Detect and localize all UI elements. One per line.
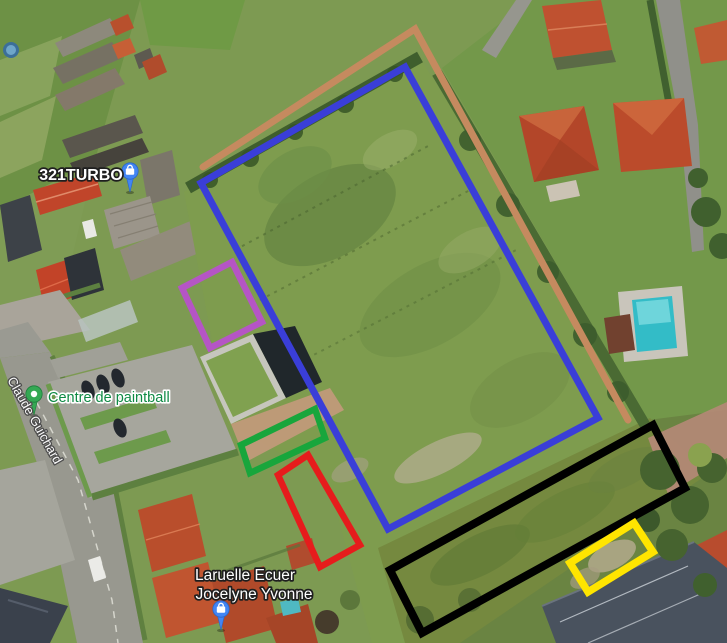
satellite-map[interactable]: 321TURBOCentre de paintballLaruelle Ecue… [0, 0, 727, 643]
label-laruelle-line2[interactable]: Jocelyne Yvonne [196, 586, 313, 603]
label-laruelle-line1[interactable]: Laruelle Ecuer [195, 567, 295, 584]
satellite-imagery: 321TURBOCentre de paintballLaruelle Ecue… [0, 0, 727, 643]
label-321turbo[interactable]: 321TURBO [39, 167, 123, 184]
label-centre-de-paintball[interactable]: Centre de paintball [48, 390, 170, 406]
poi-dot-icon [31, 391, 37, 397]
